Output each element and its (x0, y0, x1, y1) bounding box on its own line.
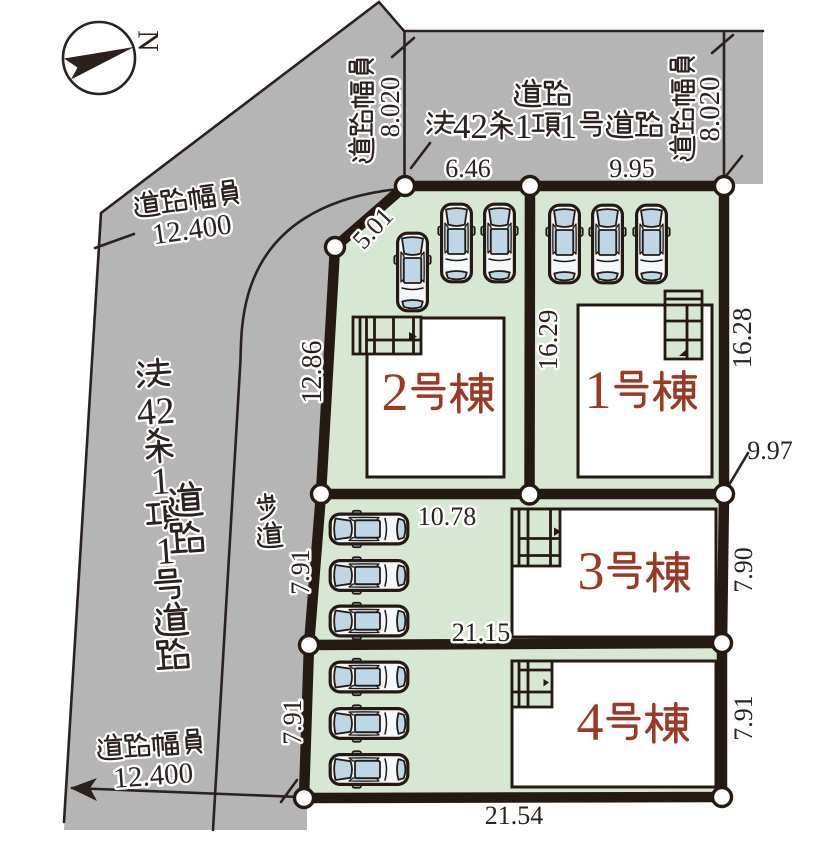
svg-text:6.46: 6.46 (445, 154, 491, 183)
svg-text:1: 1 (560, 107, 578, 146)
svg-text:12.400: 12.400 (112, 757, 194, 794)
svg-text:3: 3 (578, 541, 605, 601)
svg-text:12.86: 12.86 (297, 341, 328, 404)
svg-text:7.91: 7.91 (729, 695, 758, 741)
svg-text:N: N (132, 30, 165, 52)
svg-text:9.97: 9.97 (747, 436, 793, 465)
svg-text:1: 1 (515, 107, 533, 146)
svg-text:21.54: 21.54 (485, 801, 544, 830)
svg-text:10.78: 10.78 (418, 502, 477, 531)
svg-text:7.91: 7.91 (278, 699, 307, 745)
svg-text:16.28: 16.28 (727, 308, 757, 369)
svg-text:16.29: 16.29 (533, 310, 563, 371)
svg-text:1: 1 (585, 360, 612, 420)
svg-text:7.91: 7.91 (286, 549, 315, 595)
svg-text:7.90: 7.90 (729, 547, 758, 593)
svg-text:4: 4 (577, 692, 604, 752)
svg-text:8.020: 8.020 (694, 76, 726, 141)
svg-text:8.020: 8.020 (375, 77, 405, 138)
svg-text:21.15: 21.15 (452, 618, 511, 647)
svg-text:9.95: 9.95 (609, 154, 655, 183)
svg-text:42: 42 (453, 107, 488, 146)
svg-text:2: 2 (382, 362, 409, 422)
